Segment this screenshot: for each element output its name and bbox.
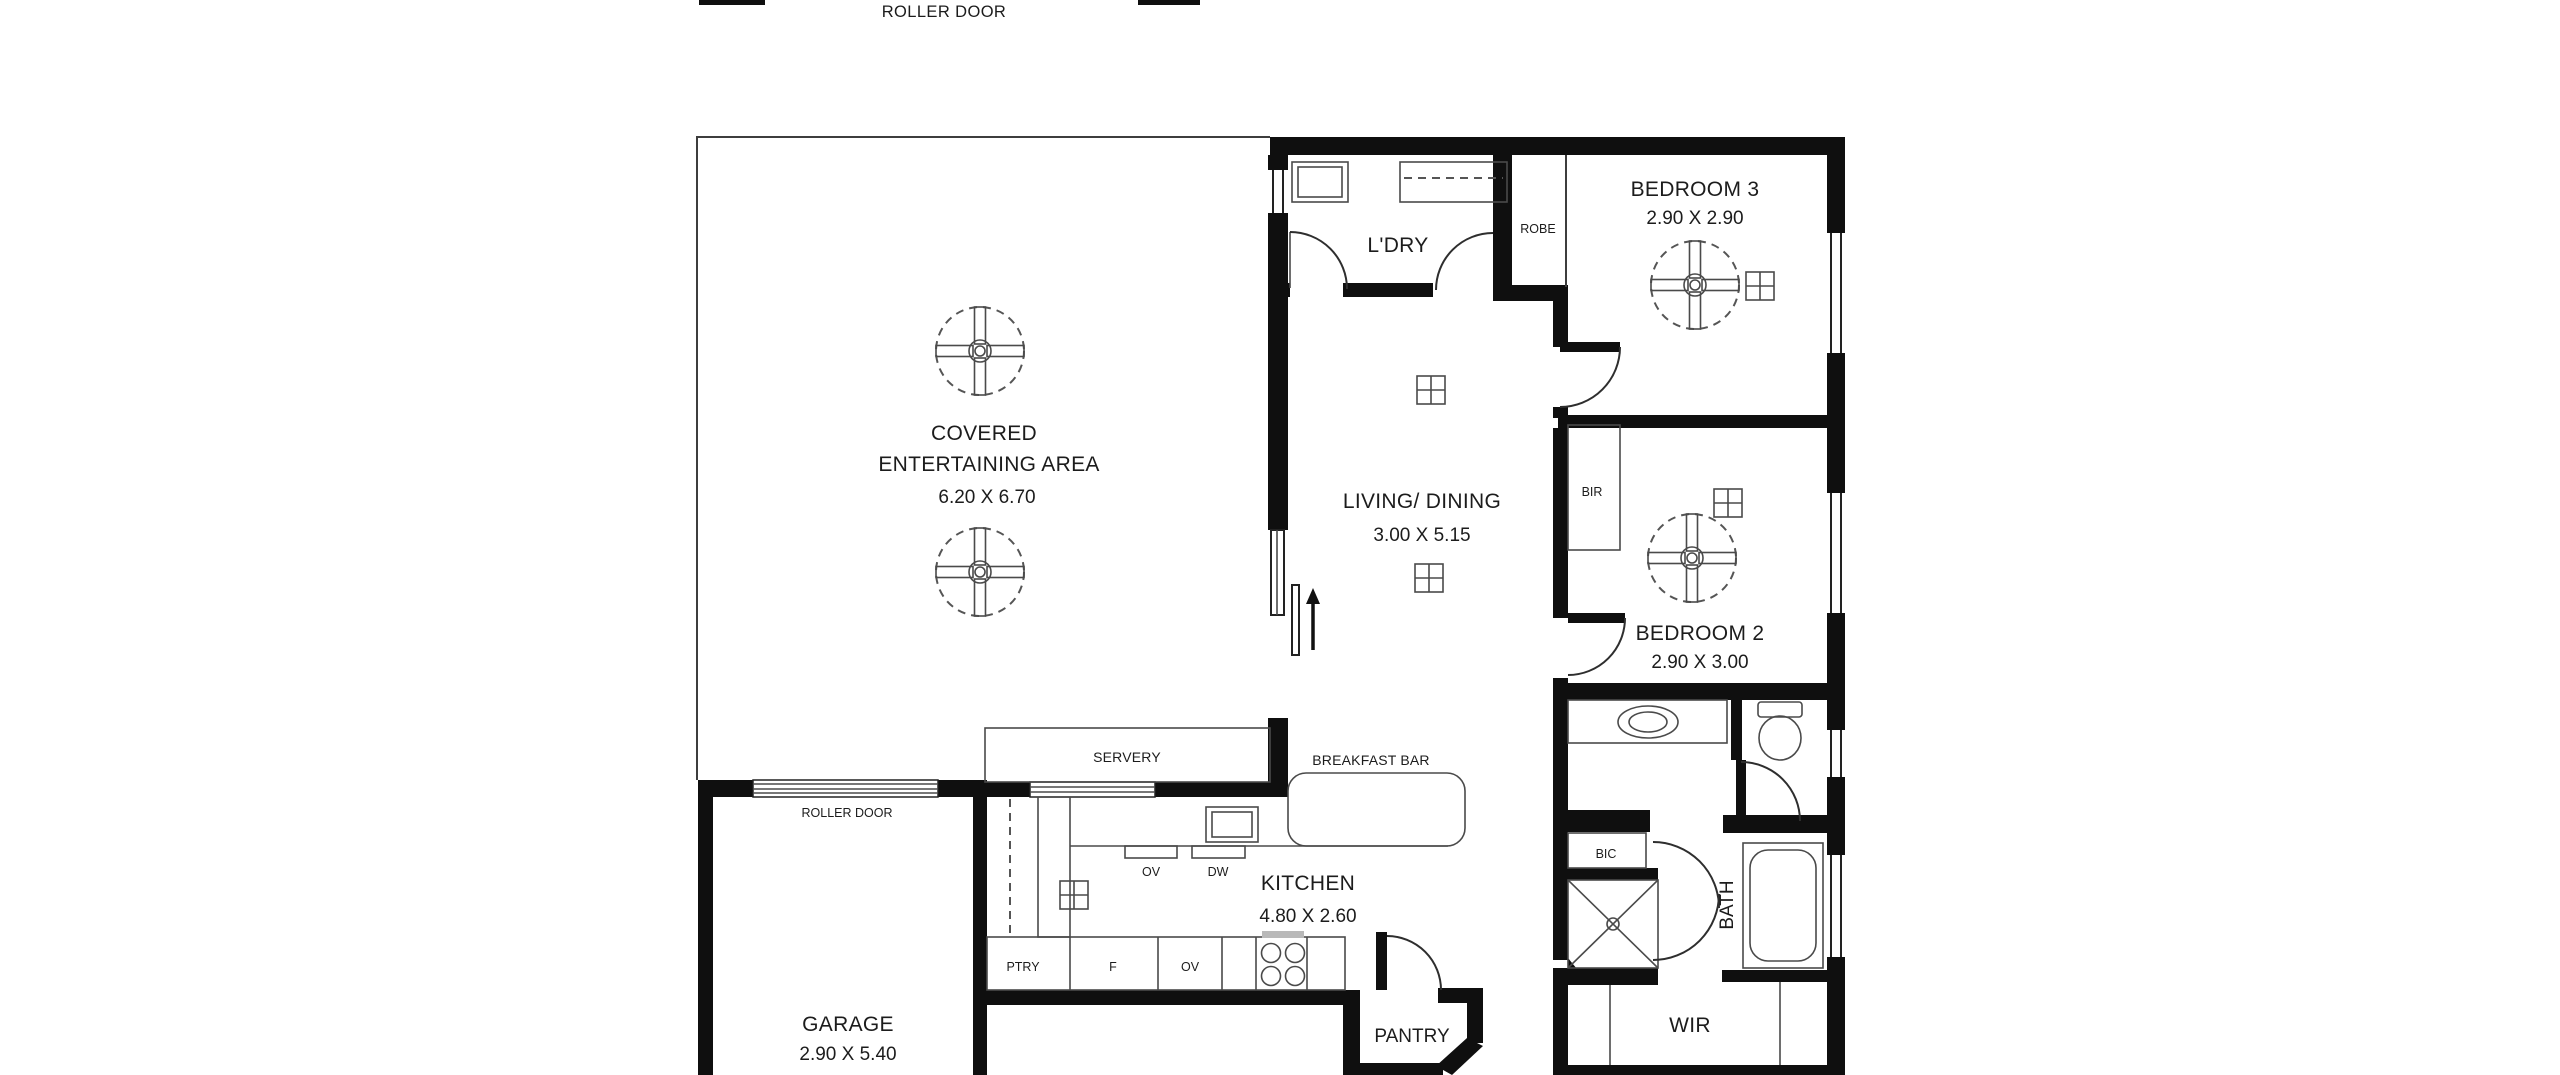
bathroom-wc (1568, 700, 1802, 822)
door-arc (1436, 233, 1493, 290)
wall-segment (698, 780, 753, 797)
wall-segment (1553, 810, 1650, 832)
wall-segment (938, 780, 987, 797)
wall-segment (1268, 155, 1288, 170)
wall-segment (1553, 700, 1568, 810)
window-wc (1827, 730, 1845, 777)
door-leaf (1560, 342, 1620, 352)
oven-lower-label: OV (1181, 960, 1200, 974)
pantry-cupboard-label: PTRY (1006, 960, 1040, 974)
room-label: LIVING/ DINING (1343, 490, 1501, 513)
wall-segment (1553, 985, 1568, 1075)
dishwasher-label: DW (1208, 865, 1229, 879)
servery-window (1030, 782, 1155, 797)
wall-segment (1343, 990, 1360, 1075)
fridge-label: F (1109, 960, 1117, 974)
dishwasher-box (1192, 846, 1245, 858)
wall-segment (1553, 428, 1568, 618)
room-label: BEDROOM 3 (1631, 178, 1760, 201)
room-dims: 6.20 X 6.70 (938, 487, 1035, 508)
window-laundry (1268, 170, 1288, 213)
room-label: GARAGE (802, 1013, 894, 1036)
door-leaf (1568, 613, 1625, 623)
wall-segment (1270, 137, 1845, 155)
bench-left-limb (1038, 797, 1070, 937)
basin-inner (1629, 712, 1667, 732)
bath-label: BATH (1717, 880, 1738, 929)
room-label: WIR (1669, 1014, 1711, 1037)
window-bedroom2 (1827, 493, 1845, 613)
ceiling-fan-icon (1648, 514, 1736, 602)
wall-segment (1827, 777, 1845, 855)
wall-segment (1731, 700, 1742, 760)
kitchen-sink-inner (1212, 812, 1252, 837)
door-arc (1387, 936, 1441, 990)
door-arc (1568, 618, 1625, 675)
toilet-cistern (1758, 702, 1802, 717)
wall-segment (1353, 1063, 1443, 1075)
wall-segment (1467, 1003, 1483, 1043)
room-dims: 2.90 X 3.00 (1651, 652, 1748, 673)
wall-segment (985, 990, 1355, 1005)
kitchen: OV DW KITCHEN 4.80 X 2.60 PTRY F OV (987, 797, 1448, 990)
wall-segment (699, 0, 765, 5)
door-leaf (1376, 932, 1387, 990)
wall-segment (1268, 213, 1288, 530)
room-label: BEDROOM 2 (1636, 622, 1765, 645)
shower (1568, 880, 1658, 968)
bath-wir-zone: BIC BATH WIR (1568, 833, 1823, 1065)
oven-upper-label: OV (1142, 865, 1161, 879)
cooktop-strip (1262, 931, 1304, 938)
wall-segment (1553, 1065, 1845, 1075)
garage-roller-door (753, 780, 938, 797)
door-arc (1290, 232, 1347, 289)
wall-segment (1155, 782, 1268, 797)
basin (1618, 706, 1678, 738)
floor-plan-page: ROLLER DOOR COVERED ENTERTAINING AREA 6.… (0, 0, 2560, 1075)
wall-segment (698, 797, 713, 1075)
wall-segment (1553, 297, 1568, 347)
entry-arrow-head-icon (1306, 588, 1320, 604)
covered-entertaining-area: COVERED ENTERTAINING AREA 6.20 X 6.70 (697, 137, 1270, 780)
bic-label: BIC (1596, 847, 1617, 861)
laundry-trough (1292, 162, 1348, 202)
cooktop-burner-icon (1286, 967, 1305, 986)
cooktop-burner-icon (1286, 944, 1305, 963)
wall-segment (1493, 155, 1512, 286)
wall-segment (1827, 957, 1845, 1075)
wall-segment (1722, 970, 1827, 982)
lower-bench: PTRY F OV (987, 931, 1345, 990)
cooktop-burner-icon (1262, 944, 1281, 963)
robe-label: ROBE (1520, 222, 1555, 236)
ceiling-fan-icon (936, 307, 1024, 395)
oven-upper-box (1125, 846, 1177, 858)
ceiling-fan-icon (1651, 241, 1739, 329)
ceiling-fan-icon (936, 528, 1024, 616)
door-leaf (1736, 760, 1746, 822)
room-dims: 2.90 X 2.90 (1646, 208, 1743, 229)
wall-segment (1558, 415, 1845, 428)
vent-icon (1417, 376, 1445, 404)
door-arc (1653, 894, 1719, 960)
toilet-bowl (1759, 716, 1801, 760)
wall-segment (1553, 832, 1568, 960)
bir-label: BIR (1582, 485, 1603, 499)
room-dims: 2.90 X 5.40 (799, 1044, 896, 1065)
wall-segment (987, 782, 1030, 797)
wall-segment (1268, 283, 1290, 297)
vent-icon (1746, 272, 1774, 300)
bedroom2: BIR BEDROOM 2 2.90 X 3.00 (1568, 425, 1764, 675)
room-label: COVERED (931, 422, 1037, 445)
wall-segment (1553, 968, 1658, 985)
breakfast-bar-label: BREAKFAST BAR (1312, 752, 1430, 768)
slider-panel (1292, 585, 1299, 655)
vent-icon (1060, 881, 1088, 909)
door-arc (1741, 762, 1800, 821)
roller-door-label: ROLLER DOOR (802, 806, 893, 820)
wall-segment (1553, 407, 1568, 418)
room-label: ENTERTAINING AREA (878, 453, 1099, 476)
wall-segment (1138, 0, 1200, 5)
cooktop-burner-icon (1262, 967, 1281, 986)
wall-segment (1827, 613, 1845, 730)
window-bath (1827, 855, 1845, 957)
door-arc (1653, 842, 1719, 908)
wall-segment (1438, 988, 1483, 1003)
bedroom3: BEDROOM 3 2.90 X 2.90 (1560, 178, 1774, 407)
wall-segment (1553, 868, 1658, 880)
floor-plan-svg: ROLLER DOOR COVERED ENTERTAINING AREA 6.… (0, 0, 2560, 1075)
laundry-trough-inner (1298, 167, 1342, 197)
wall-segment (973, 797, 987, 1075)
wall-segment (1553, 683, 1845, 700)
garage: ROLLER DOOR GARAGE 2.90 X 5.40 (799, 806, 896, 1065)
window-bedroom3 (1827, 233, 1845, 353)
room-label: KITCHEN (1261, 872, 1355, 895)
servery-label: SERVERY (1093, 749, 1161, 765)
pantry-label: PANTRY (1374, 1026, 1450, 1047)
laundry-room: L'DRY (1290, 162, 1507, 290)
room-dims: 3.00 X 5.15 (1373, 525, 1470, 546)
room-dims: 4.80 X 2.60 (1259, 906, 1356, 927)
vent-icon (1714, 489, 1742, 517)
bathtub (1743, 843, 1823, 968)
door-arc (1560, 347, 1620, 407)
laundry-bench (1400, 162, 1507, 202)
sliding-door (1271, 530, 1320, 655)
wall-segment (1827, 137, 1845, 233)
room-label: L'DRY (1367, 234, 1428, 257)
roller-door-top-label: ROLLER DOOR (882, 3, 1007, 21)
breakfast-bar-bench (1288, 773, 1465, 846)
living-dining: LIVING/ DINING 3.00 X 5.15 (1343, 376, 1501, 592)
wall-segment (1268, 718, 1288, 797)
vent-icon (1415, 564, 1443, 592)
wall-segment (1343, 283, 1433, 297)
